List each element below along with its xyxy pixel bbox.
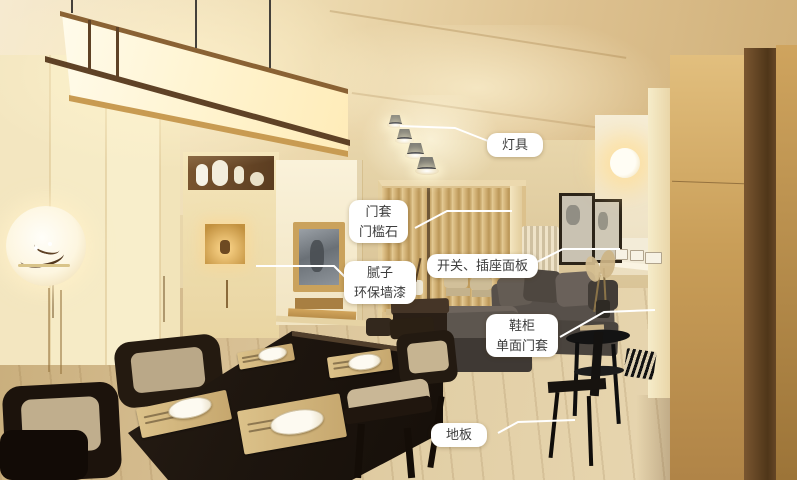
- pendant-lantern: [0, 0, 400, 175]
- label-shoe-cabinet: 鞋柜 单面门套: [486, 314, 558, 357]
- lantern-slat: [88, 20, 91, 69]
- slatted-rack: [623, 348, 657, 380]
- wall-art: [559, 193, 595, 265]
- label-door-frame: 门套 门槛石: [349, 200, 408, 243]
- label-lighting: 灯具: [487, 133, 543, 157]
- socket-panel: [615, 249, 628, 260]
- niche-stand-leg: [60, 290, 62, 374]
- tall-wood-cabinet: [670, 55, 746, 480]
- niche-decor: [220, 240, 230, 254]
- label-putty-paint: 腻子 环保墙漆: [344, 261, 416, 304]
- niche-shelf: [18, 264, 70, 267]
- spotlight-glow: [415, 167, 439, 175]
- stool: [366, 318, 392, 336]
- tv-image-figure: [310, 240, 324, 272]
- cabinet-dark-edge: [744, 48, 778, 480]
- wall-sconce: [610, 148, 640, 178]
- cabinet-side-strip: [776, 45, 797, 480]
- wall-art-mark: [566, 205, 580, 225]
- dining-chair-cushion: [407, 340, 450, 374]
- pampas-vase: [596, 300, 610, 318]
- tv-shelf-niche: [295, 298, 343, 309]
- wall-art-mark: [598, 212, 608, 230]
- socket-panel: [645, 252, 662, 264]
- dining-chair-corner: [0, 430, 88, 480]
- far-chair-seat: [446, 288, 470, 296]
- label-switch-socket: 开关、插座面板: [427, 254, 538, 278]
- socket-panel: [630, 250, 644, 261]
- lantern-rod: [195, 0, 197, 48]
- dining-chair-cushion: [130, 346, 206, 393]
- label-floor: 地板: [431, 423, 487, 447]
- lantern-slat: [116, 27, 119, 77]
- bonsai-blossom: [34, 246, 38, 250]
- lantern-rod: [71, 0, 73, 13]
- bonsai-blossom: [48, 242, 52, 246]
- wardrobe-handle: [163, 276, 165, 322]
- curtain-gap: [427, 188, 430, 312]
- far-chair: [470, 278, 492, 290]
- niche-stand-leg: [48, 288, 50, 372]
- lantern-rod: [269, 0, 271, 68]
- annotated-room-photo: 灯具 门套 门槛石 腻子 环保墙漆 开关、插座面板 鞋柜 单面门套 地板: [0, 0, 797, 480]
- cabinet-handle: [226, 280, 228, 308]
